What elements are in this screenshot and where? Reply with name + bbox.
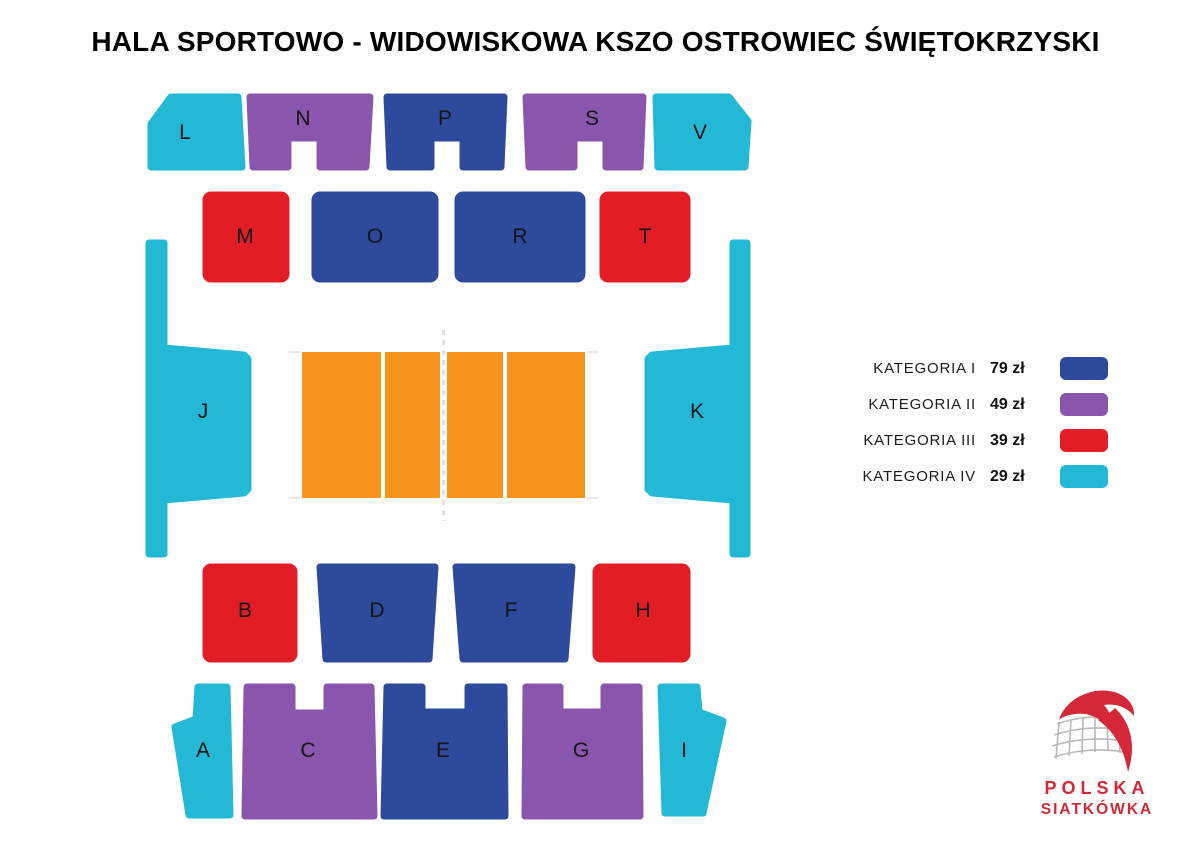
section-L[interactable]: L: [151, 97, 242, 167]
section-H[interactable]: H: [596, 567, 687, 659]
section-C[interactable]: C: [245, 687, 374, 816]
court-front-zone-right: [447, 352, 503, 498]
section-I[interactable]: I: [661, 687, 723, 813]
section-F[interactable]: F: [456, 567, 572, 659]
eagle-net-icon: [1045, 684, 1149, 776]
section-F-shape[interactable]: [456, 567, 572, 659]
section-T[interactable]: T: [603, 195, 687, 279]
section-D[interactable]: D: [320, 567, 435, 659]
logo-text-polska: POLSKA: [1023, 778, 1171, 799]
polska-siatkowka-logo: POLSKA SIATKÓWKA: [1023, 684, 1171, 819]
section-S[interactable]: S: [526, 97, 643, 167]
legend-category-label: KATEGORIA IV: [858, 468, 976, 485]
legend-category-label: KATEGORIA III: [858, 432, 976, 449]
section-V[interactable]: V: [656, 97, 748, 167]
court-front-zone-left: [385, 352, 440, 498]
legend-color-swatch-category-4: [1060, 465, 1108, 488]
section-R-shape[interactable]: [458, 195, 582, 279]
section-B[interactable]: B: [206, 567, 294, 659]
section-L-shape[interactable]: [151, 97, 242, 167]
section-R[interactable]: R: [458, 195, 582, 279]
legend-item-category-2: KATEGORIA II 49 zł: [858, 393, 1108, 416]
section-E-shape[interactable]: [384, 687, 505, 816]
legend-item-category-3: KATEGORIA III 39 zł: [858, 429, 1108, 452]
section-J-shape[interactable]: [149, 243, 248, 554]
legend-item-category-1: KATEGORIA I 79 zł: [858, 357, 1108, 380]
legend-category-label: KATEGORIA I: [858, 360, 976, 377]
legend-price: 79 zł: [990, 360, 1040, 378]
legend-price: 39 zł: [990, 432, 1040, 450]
legend-price: 49 zł: [990, 396, 1040, 414]
section-K-shape[interactable]: [648, 243, 747, 554]
section-M-shape[interactable]: [206, 195, 286, 279]
section-H-shape[interactable]: [596, 567, 687, 659]
section-M[interactable]: M: [206, 195, 286, 279]
legend-color-swatch-category-2: [1060, 393, 1108, 416]
section-B-shape[interactable]: [206, 567, 294, 659]
section-T-shape[interactable]: [603, 195, 687, 279]
section-O-shape[interactable]: [315, 195, 435, 279]
section-D-shape[interactable]: [320, 567, 435, 659]
court-back-zone-left: [302, 352, 381, 498]
legend-color-swatch-category-1: [1060, 357, 1108, 380]
section-G[interactable]: G: [525, 687, 640, 816]
logo-text-siatkowka: SIATKÓWKA: [1023, 801, 1171, 819]
section-P[interactable]: P: [387, 97, 504, 167]
legend-price: 29 zł: [990, 468, 1040, 486]
section-P-shape[interactable]: [387, 97, 504, 167]
legend-color-swatch-category-3: [1060, 429, 1108, 452]
court-back-zone-right: [507, 352, 585, 498]
section-N[interactable]: N: [250, 97, 370, 167]
section-N-shape[interactable]: [250, 97, 370, 167]
section-G-shape[interactable]: [525, 687, 640, 816]
section-O[interactable]: O: [315, 195, 435, 279]
section-S-shape[interactable]: [526, 97, 643, 167]
volleyball-court: [289, 330, 598, 521]
section-A[interactable]: A: [175, 687, 230, 815]
legend-category-label: KATEGORIA II: [858, 396, 976, 413]
section-J[interactable]: J: [149, 243, 248, 554]
section-A-shape[interactable]: [175, 687, 230, 815]
section-C-shape[interactable]: [245, 687, 374, 816]
legend-item-category-4: KATEGORIA IV 29 zł: [858, 465, 1108, 488]
section-E[interactable]: E: [384, 687, 505, 816]
price-legend: KATEGORIA I 79 zł KATEGORIA II 49 zł KAT…: [858, 357, 1108, 501]
section-I-shape[interactable]: [661, 687, 723, 813]
section-K[interactable]: K: [648, 243, 747, 554]
section-V-shape[interactable]: [656, 97, 748, 167]
